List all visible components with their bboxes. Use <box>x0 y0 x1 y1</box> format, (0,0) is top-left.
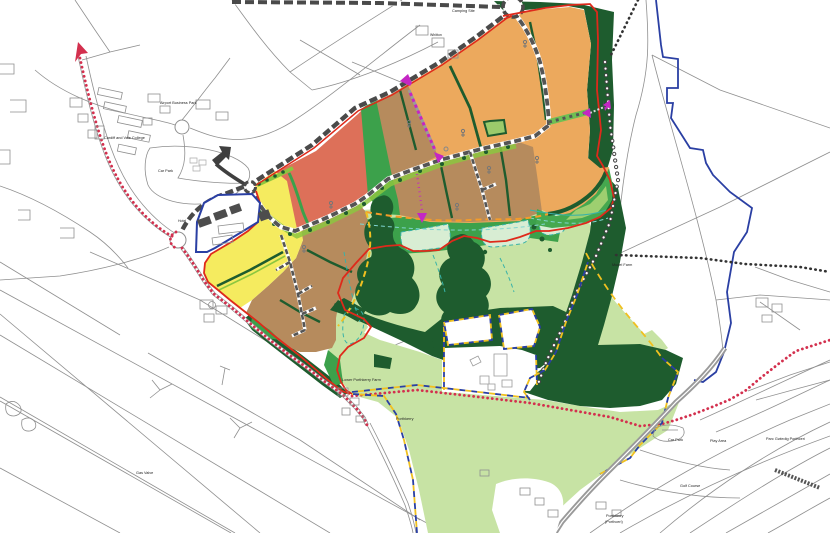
svg-text:Play Area: Play Area <box>710 439 727 443</box>
svg-text:Hotel: Hotel <box>178 219 186 223</box>
svg-text:Lower Porthkerry Farm: Lower Porthkerry Farm <box>342 378 381 382</box>
svg-text:Gas Valve: Gas Valve <box>136 471 153 475</box>
svg-text:Golf Course: Golf Course <box>680 484 700 488</box>
svg-text:Cardiff and Vale College: Cardiff and Vale College <box>104 136 145 140</box>
svg-text:Porthkerry: Porthkerry <box>606 514 624 518</box>
svg-text:Model Farm: Model Farm <box>612 263 632 267</box>
svg-text:Whitton: Whitton <box>430 33 442 37</box>
svg-text:(Porthceri): (Porthceri) <box>605 520 623 524</box>
svg-text:Car Park: Car Park <box>158 169 173 173</box>
svg-text:Airport Business Park: Airport Business Park <box>160 101 197 105</box>
svg-text:Camping Site: Camping Site <box>452 9 475 13</box>
svg-text:Car Park: Car Park <box>668 438 683 442</box>
svg-text:Porthkerry: Porthkerry <box>396 417 414 421</box>
svg-text:Parc Gwledig Porthceri: Parc Gwledig Porthceri <box>766 437 805 441</box>
